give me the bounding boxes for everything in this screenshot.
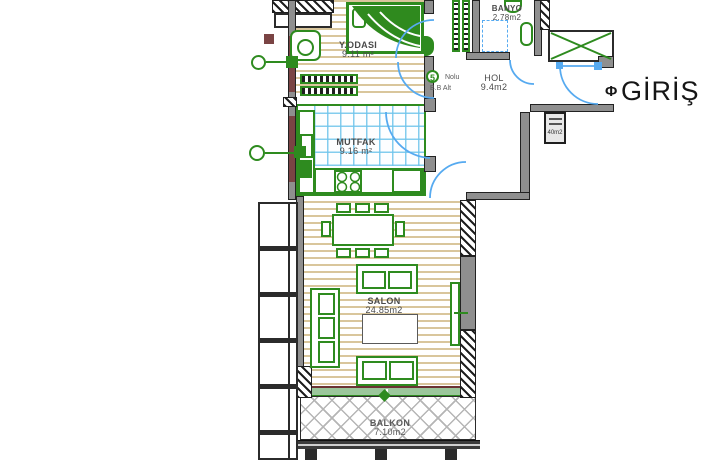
entrance-label: GİRİŞ [621, 76, 700, 107]
railing-post-3 [445, 449, 457, 460]
dining-chair-t3 [374, 203, 389, 213]
kitchen-dishwasher [300, 160, 312, 178]
marker-2-target [294, 146, 306, 158]
hall-area: 9.4m2 [466, 83, 522, 92]
dining-chair-right [395, 221, 405, 237]
bed-nightstand [424, 36, 434, 56]
section-marker-1 [251, 55, 266, 70]
balcony-sliding-door [312, 386, 460, 396]
corridor-right-wall [520, 112, 530, 200]
small-shaft-label: 40m2 [546, 130, 564, 136]
bedroom-armchair-seat [297, 39, 314, 56]
loveseat [356, 356, 418, 386]
living-right-wall-hatch-top [460, 200, 476, 256]
kitchen-area: 9.16 m² [316, 147, 396, 156]
coffee-table [362, 314, 418, 344]
balcony-area: 7.10m2 [350, 428, 430, 437]
bedroom-right-wall-top [424, 0, 434, 14]
entry-door-arc [560, 66, 598, 104]
dining-chair-b3 [374, 248, 389, 258]
floor-plan-canvas: 40m2 [0, 0, 720, 460]
living-top-right-wall [466, 192, 530, 200]
kitchen-fridge [392, 169, 422, 193]
unit-number: 5 [430, 73, 435, 83]
bed-pillow [352, 8, 366, 28]
bathroom-name: BANYO [480, 4, 534, 13]
kitchen-right-wall-bottom [424, 156, 436, 172]
small-shaft-box: 40m2 [544, 112, 566, 144]
bedroom-dresser-top [300, 74, 358, 84]
marker-1-leader [266, 61, 288, 63]
living-right-wall-mid [460, 256, 476, 330]
hall-bottom-wall [530, 104, 614, 112]
left-window-column [258, 202, 298, 460]
bedroom-label: Y.ODASI 9.11 m² [318, 41, 398, 59]
living-radiator [450, 282, 460, 346]
balcony-label: BALKON 7.10m2 [350, 419, 430, 437]
bathroom-label: BANYO 2.78m2 [480, 4, 534, 22]
sideboard [356, 264, 418, 294]
balcony-railing [296, 440, 480, 449]
dining-chair-t2 [355, 203, 370, 213]
unit-line2: B.B Alt [430, 85, 451, 92]
entrance-door-symbol: Φ [605, 83, 617, 100]
entry-wall-above-door [598, 56, 614, 68]
section-marker-2 [249, 145, 265, 161]
shaft-wall-hatch [540, 0, 550, 30]
bathroom-sink [520, 22, 533, 46]
balcony-left-pier [296, 366, 312, 398]
railing-post-1 [305, 449, 317, 460]
bedroom-area: 9.11 m² [318, 50, 398, 59]
bedroom-kitchen-divider [283, 97, 297, 107]
shower-area [482, 20, 508, 52]
dining-chair-t1 [336, 203, 351, 213]
living-area: 24.85m2 [344, 306, 424, 315]
unit-number-circle: 5 [426, 70, 439, 83]
kitchen-right-wall-top [424, 98, 436, 112]
maroon-accent-top [264, 34, 274, 44]
top-left-wall-hatch [272, 0, 334, 13]
bathroom-bottom-wall [466, 52, 510, 60]
top-left-box [274, 13, 332, 28]
kitchen-tile-floor [314, 106, 424, 166]
marker-1-target [286, 56, 298, 68]
dining-chair-b1 [336, 248, 351, 258]
bedroom-dresser-bottom [300, 86, 358, 96]
living-right-wall-hatch-bottom [460, 330, 476, 398]
dining-chair-left [321, 221, 331, 237]
unit-marker: 5 Nolu B.B Alt [426, 70, 472, 96]
hall-closet-right [462, 0, 470, 52]
bathroom-left-wall [472, 0, 480, 56]
hall-label: HOL 9.4m2 [466, 74, 522, 92]
dining-table [332, 214, 394, 246]
marker-2-leader [265, 152, 296, 154]
stove [334, 170, 362, 193]
dining-chair-b2 [355, 248, 370, 258]
unit-line1: Nolu [445, 74, 459, 81]
bathroom-area: 2.78m2 [480, 13, 534, 22]
railing-post-2 [375, 449, 387, 460]
kitchen-label: MUTFAK 9.16 m² [316, 138, 396, 156]
hall-closet-left [452, 0, 460, 52]
sofa-left [310, 288, 340, 368]
living-label: SALON 24.85m2 [344, 297, 424, 315]
